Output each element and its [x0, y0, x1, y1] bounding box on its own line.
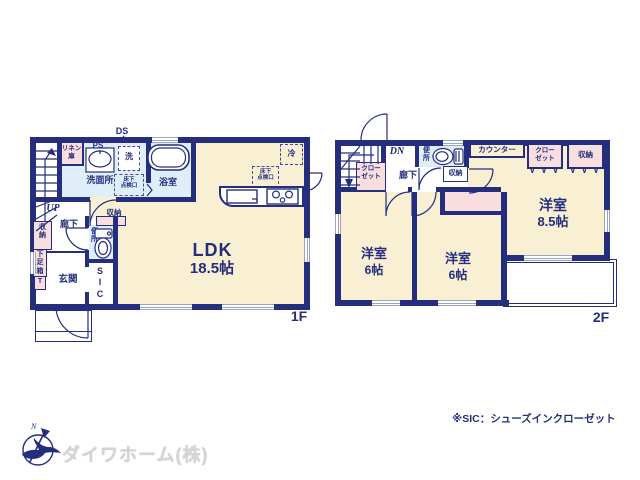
- room-label-washroom: 洗面所: [84, 175, 116, 186]
- wall-segment: [85, 292, 89, 304]
- sic-note: ※SIC：シューズインクローゼット: [452, 413, 622, 425]
- wall-segment: [440, 192, 445, 213]
- wall-segment: [85, 216, 89, 228]
- label-washer: 洗: [121, 152, 137, 161]
- label-shoe-box: 下 足 箱: [35, 251, 45, 276]
- compass-n-label: N: [30, 422, 37, 431]
- kitchen-counter: [219, 186, 304, 207]
- room-label-sic: S I C: [94, 266, 106, 300]
- window: [304, 238, 310, 262]
- label-closet: クロー ゼット: [529, 147, 561, 162]
- label-closet-hall: クロー ゼット: [357, 165, 385, 180]
- storage-notches: ∨ ∨ ∨: [567, 168, 604, 176]
- label-fridge: 冷: [283, 149, 300, 158]
- door-arc: [66, 228, 88, 250]
- floor-label-1f: 1F: [286, 308, 312, 325]
- ldk-area: [116, 197, 196, 304]
- wall-segment: [440, 211, 501, 215]
- bird-icon: [22, 438, 61, 459]
- wall-segment: [412, 192, 417, 300]
- label-dn: DN: [385, 146, 409, 158]
- label-counter: カウンター: [470, 146, 524, 155]
- room-label-ldk: LDK: [185, 240, 240, 261]
- label-ds: DS: [112, 126, 132, 137]
- label-hall-2f: 廊下: [396, 170, 420, 181]
- balcony: [503, 259, 617, 307]
- window: [222, 304, 274, 310]
- window: [152, 137, 178, 143]
- label-hall: 廊下: [57, 219, 81, 230]
- label-storage-left: 収 納: [36, 224, 49, 241]
- bath-area: [146, 143, 192, 199]
- floor-label-2f: 2F: [588, 309, 614, 326]
- wall-segment: [604, 140, 610, 261]
- wall-segment: [85, 259, 118, 263]
- wall-segment: [191, 143, 196, 202]
- window: [438, 300, 476, 306]
- label-toilet-2f: 便 所: [421, 147, 432, 164]
- stairs-arrow-1f: [47, 148, 56, 156]
- ldk-area: [191, 143, 304, 304]
- wall-segment: [116, 197, 194, 202]
- wall-segment: [415, 146, 419, 167]
- room-size-mid: 6帖: [441, 268, 475, 282]
- wall-segment: [501, 192, 507, 306]
- company-name: ダイワホーム(株): [62, 441, 208, 467]
- window: [335, 214, 341, 234]
- porch-step: [35, 310, 92, 332]
- window: [372, 300, 400, 306]
- room-label-main: 洋室: [530, 197, 576, 214]
- label-floor-hatch: 床下 点検口: [252, 169, 279, 182]
- label-toilet: 便 所: [89, 228, 100, 245]
- window: [140, 304, 192, 310]
- label-storage: 収納: [100, 209, 128, 218]
- wall-segment: [572, 255, 610, 261]
- stairs-1f-icon: [36, 151, 57, 231]
- compass-needle: [41, 428, 50, 438]
- balcony-inner-line: [506, 262, 614, 304]
- room-size-main: 8.5帖: [528, 214, 578, 229]
- room-label-entrance: 玄関: [55, 274, 81, 285]
- room-label-bath: 浴室: [156, 177, 180, 188]
- room-mid-closet: [445, 192, 501, 213]
- floor-plan-page: LDK 18.5帖 洗面所 浴室 リネン 庫 PS DS 洗 冷 床下 点検口 …: [0, 0, 640, 480]
- room-label-linen: リネン 庫: [60, 145, 83, 160]
- door-arc: [361, 114, 387, 140]
- window-balcony: [524, 255, 572, 261]
- room-size-ldk: 18.5帖: [178, 260, 246, 278]
- wall-segment: [146, 143, 151, 183]
- wall-segment: [436, 187, 501, 192]
- window: [604, 210, 610, 232]
- label-floor-hatch: 床下 点検口: [115, 177, 143, 190]
- wall-segment: [304, 137, 310, 310]
- room-size-left: 6帖: [357, 263, 391, 277]
- window: [443, 140, 463, 146]
- label-storage-small: 収納: [445, 170, 466, 178]
- label-ps: PS: [88, 141, 108, 150]
- label-shoe-t: T: [35, 278, 45, 286]
- label-storage-2f: 収納: [569, 151, 602, 160]
- wall-segment: [335, 300, 509, 306]
- closet-notches: ∨ ∨ ∨: [527, 168, 563, 176]
- wall-segment: [36, 197, 90, 202]
- label-up: UP: [42, 203, 64, 215]
- porch-step: [35, 331, 92, 342]
- company-logo: N: [22, 422, 61, 465]
- room-label-left: 洋室: [352, 246, 396, 261]
- room-label-mid: 洋室: [436, 251, 480, 266]
